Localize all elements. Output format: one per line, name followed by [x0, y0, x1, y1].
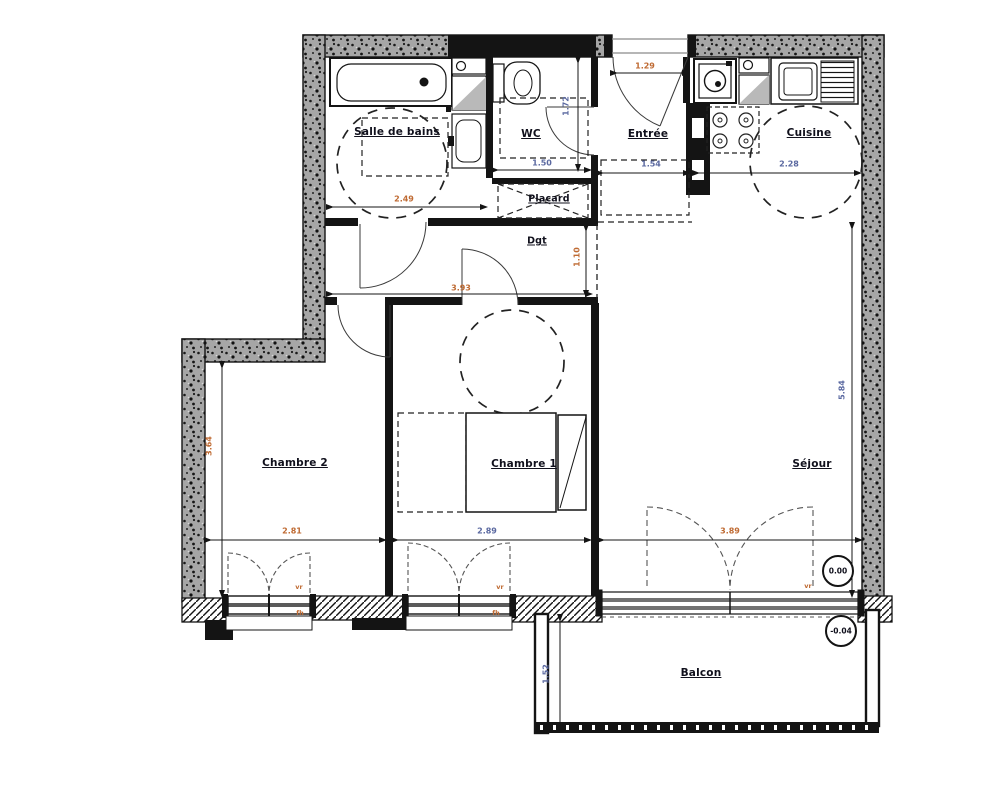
turning-circles	[337, 106, 862, 414]
drainer-icon	[821, 61, 854, 102]
kitchen-counter	[771, 58, 858, 104]
kitchen-sink-unit	[739, 58, 769, 104]
washbasin-unit	[448, 58, 486, 168]
bed-icon	[466, 413, 556, 512]
bay-swing-provision	[647, 507, 813, 590]
floor-plan-page: Salle de bains WC Entrée Cuisine Placard…	[0, 0, 1000, 789]
window-icon-chambre1	[406, 594, 512, 630]
interior-walls	[325, 57, 690, 598]
window-icon-chambre2	[226, 594, 312, 630]
floor-plan-drawing	[0, 0, 1000, 789]
entry-opening	[604, 35, 696, 57]
turning-circle-icon	[460, 310, 564, 414]
bathtub-icon	[330, 58, 452, 106]
turning-circle-icon	[337, 108, 447, 218]
washing-machine-icon	[694, 59, 736, 103]
sliding-bay-icon	[596, 590, 864, 616]
chambre1-door-swing-icon	[462, 249, 518, 305]
level-marker-icon	[823, 556, 853, 586]
wc-door-swing-icon	[546, 107, 594, 155]
bed-provision-dashed	[398, 413, 466, 512]
top-wall-dark-segment	[448, 35, 596, 57]
bathroom-door-swing-icon	[360, 222, 426, 288]
turning-circle-icon	[750, 106, 862, 218]
entry-door-swing-icon	[613, 57, 688, 126]
outer-walls	[182, 35, 884, 622]
level-marker-icon	[826, 616, 856, 646]
closet-cross-icon	[498, 184, 588, 218]
cooktop-icon	[707, 107, 759, 153]
chambre2-door-swing-icon	[338, 305, 390, 357]
window-swing-chambre2	[228, 553, 310, 594]
window-swing-chambre1	[408, 543, 510, 594]
wardrobe-icon	[558, 415, 586, 510]
